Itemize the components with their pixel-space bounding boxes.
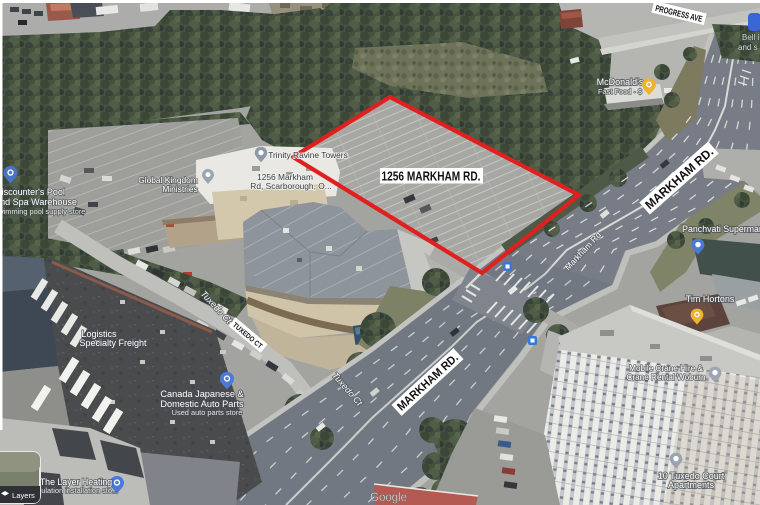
svg-text:and Spa Warehouse: and Spa Warehouse (0, 197, 77, 207)
svg-text:1256 MARKHAM RD.: 1256 MARKHAM RD. (382, 170, 481, 184)
svg-text:Apartments: Apartments (668, 480, 715, 490)
svg-text:Trinity Ravine Towers: Trinity Ravine Towers (268, 150, 348, 160)
svg-text:Canada Japanese &: Canada Japanese & (160, 389, 243, 399)
svg-text:Layers: Layers (12, 491, 35, 500)
svg-text:Specialty Freight: Specialty Freight (79, 338, 147, 348)
svg-text:Used auto parts store: Used auto parts store (172, 408, 243, 417)
svg-text:Crane Rental Woburn: Crane Rental Woburn (626, 373, 705, 382)
svg-text:Google: Google (370, 492, 407, 504)
svg-text:Ministries: Ministries (162, 184, 197, 194)
svg-text:Bell i: Bell i (742, 33, 760, 42)
svg-text:Rd, Scarborough, O...: Rd, Scarborough, O... (250, 181, 331, 191)
svg-text:Discounter's Pool: Discounter's Pool (0, 187, 65, 197)
svg-text:Tim Hortons: Tim Hortons (686, 294, 735, 304)
svg-text:Mobile Crane Hire &: Mobile Crane Hire & (629, 364, 703, 373)
svg-text:Panchvati Supermar: Panchvati Supermar (682, 224, 760, 234)
svg-text:swimming pool supply store: swimming pool supply store (0, 207, 85, 216)
svg-text:insulation installation sto...: insulation installation sto... (32, 486, 118, 495)
svg-text:and s: and s (738, 43, 758, 52)
svg-text:McDonald's: McDonald's (597, 77, 644, 87)
svg-text:Fast Food · $: Fast Food · $ (598, 87, 642, 96)
